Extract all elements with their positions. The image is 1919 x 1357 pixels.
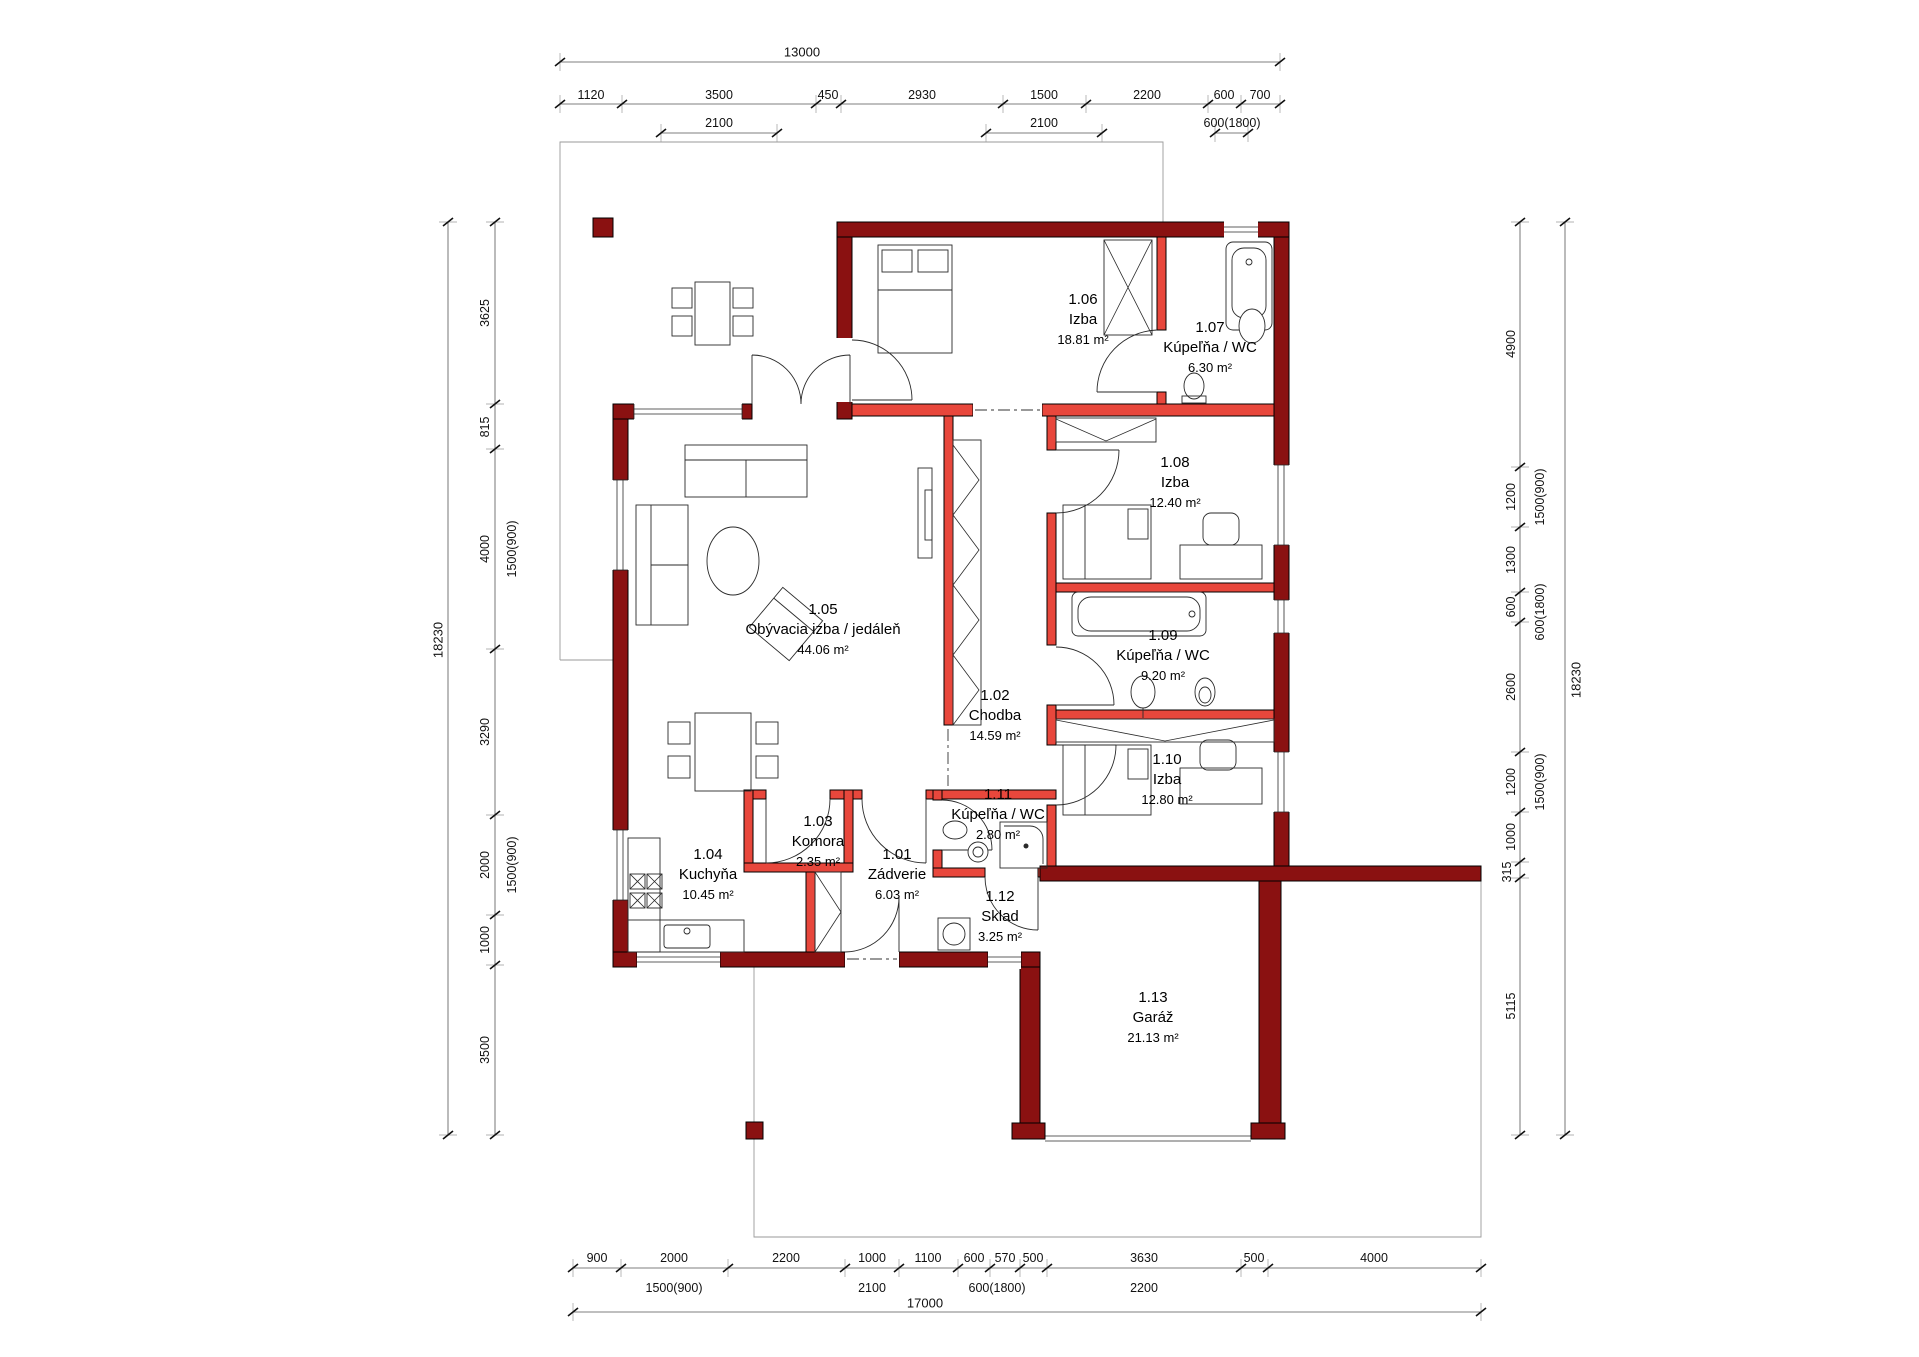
room-label-kuchyna: 1.04 Kuchyňa 10.45 m² bbox=[679, 845, 737, 905]
dim-label: 18230 bbox=[1569, 662, 1584, 698]
dim-label: 2100 bbox=[705, 116, 733, 130]
dim-label: 13000 bbox=[784, 45, 820, 60]
room-label-izba-106: 1.06 Izba 18.81 m² bbox=[1057, 290, 1108, 350]
exterior-walls bbox=[593, 218, 1481, 1139]
dim-label: 600(1800) bbox=[969, 1281, 1026, 1295]
dim-label: 1500(900) bbox=[1533, 754, 1547, 811]
washer-1-12-icon bbox=[938, 918, 970, 950]
room-label-garaz: 1.13 Garáž 21.13 m² bbox=[1127, 988, 1178, 1048]
dining-table-icon bbox=[668, 713, 778, 791]
dim-label: 5115 bbox=[1504, 993, 1518, 1020]
dim-label: 570 bbox=[995, 1251, 1016, 1265]
dim-label: 1500(900) bbox=[1533, 469, 1547, 526]
hall-wardrobe-icon bbox=[953, 440, 981, 725]
dim-label: 1000 bbox=[858, 1251, 886, 1265]
room-label-chodba: 1.02 Chodba 14.59 m² bbox=[969, 686, 1022, 746]
dim-label: 1000 bbox=[1504, 823, 1518, 851]
floor-plan-page: 13000 1120 3500 450 2930 1500 2200 600 7… bbox=[0, 0, 1919, 1357]
dim-label: 3290 bbox=[478, 718, 492, 746]
dim-label: 1500(900) bbox=[505, 521, 519, 578]
room-label-obyvacia-izba: 1.05 Obývacia izba / jedáleň 44.06 m² bbox=[745, 600, 900, 660]
dim-label: 1000 bbox=[478, 926, 492, 954]
dim-label: 1120 bbox=[578, 88, 605, 102]
room-label-komora: 1.03 Komora 2.35 m² bbox=[792, 812, 845, 872]
dim-label: 2930 bbox=[908, 88, 936, 102]
dim-label: 600(1800) bbox=[1533, 584, 1547, 641]
dim-label: 1300 bbox=[1504, 546, 1518, 574]
dim-label: 2200 bbox=[1133, 88, 1161, 102]
dim-label: 3500 bbox=[478, 1036, 492, 1064]
dim-label: 600 bbox=[1214, 88, 1235, 102]
dim-label: 4000 bbox=[1360, 1251, 1388, 1265]
dim-label: 17000 bbox=[907, 1296, 943, 1311]
room-label-kupelna-111: 1.11 Kúpeľňa / WC 2.80 m² bbox=[951, 785, 1045, 845]
dim-label: 500 bbox=[1244, 1251, 1265, 1265]
room-label-kupelna-109: 1.09 Kúpeľňa / WC 9.20 m² bbox=[1116, 626, 1210, 686]
dim-label: 2200 bbox=[1130, 1281, 1158, 1295]
bed-1-06-icon bbox=[878, 240, 1152, 353]
dim-label: 2100 bbox=[1030, 116, 1058, 130]
dim-label: 500 bbox=[1023, 1251, 1044, 1265]
dim-label: 2000 bbox=[660, 1251, 688, 1265]
room-label-izba-108: 1.08 Izba 12.40 m² bbox=[1149, 453, 1200, 513]
dim-label: 3625 bbox=[478, 299, 492, 327]
room-label-zadverie: 1.01 Zádverie 6.03 m² bbox=[868, 845, 926, 905]
tv-cabinet-icon bbox=[918, 468, 932, 558]
room-label-izba-110: 1.10 Izba 12.80 m² bbox=[1141, 750, 1192, 810]
dim-label: 18230 bbox=[431, 622, 446, 658]
dim-label: 900 bbox=[587, 1251, 608, 1265]
dim-label: 4900 bbox=[1504, 330, 1518, 358]
room-label-kupelna-107: 1.07 Kúpeľňa / WC 6.30 m² bbox=[1163, 318, 1257, 378]
dim-label: 2000 bbox=[478, 851, 492, 879]
dim-label: 2200 bbox=[772, 1251, 800, 1265]
dim-label: 450 bbox=[818, 88, 839, 102]
dim-label: 815 bbox=[478, 417, 492, 438]
dim-label: 4000 bbox=[478, 535, 492, 563]
room-label-sklad: 1.12 Sklad 3.25 m² bbox=[978, 887, 1022, 947]
dim-label: 600(1800) bbox=[1204, 116, 1261, 130]
dim-label: 600 bbox=[964, 1251, 985, 1265]
dim-label: 2100 bbox=[858, 1281, 886, 1295]
dim-label: 700 bbox=[1250, 88, 1271, 102]
dim-label: 3630 bbox=[1130, 1251, 1158, 1265]
dim-label: 1500 bbox=[1030, 88, 1058, 102]
dim-label: 1500(900) bbox=[505, 837, 519, 894]
dim-label: 315 bbox=[1500, 862, 1514, 883]
dim-label: 1200 bbox=[1504, 483, 1518, 511]
dim-label: 1100 bbox=[915, 1251, 942, 1265]
dim-label: 1200 bbox=[1504, 768, 1518, 796]
glazed-partition-icon bbox=[815, 872, 841, 952]
terrace-table-icon bbox=[672, 282, 753, 345]
dim-label: 2600 bbox=[1504, 673, 1518, 701]
floor-plan-drawing bbox=[0, 0, 1919, 1357]
dim-label: 3500 bbox=[705, 88, 733, 102]
dim-label: 1500(900) bbox=[646, 1281, 703, 1295]
dim-label: 600 bbox=[1504, 597, 1518, 618]
